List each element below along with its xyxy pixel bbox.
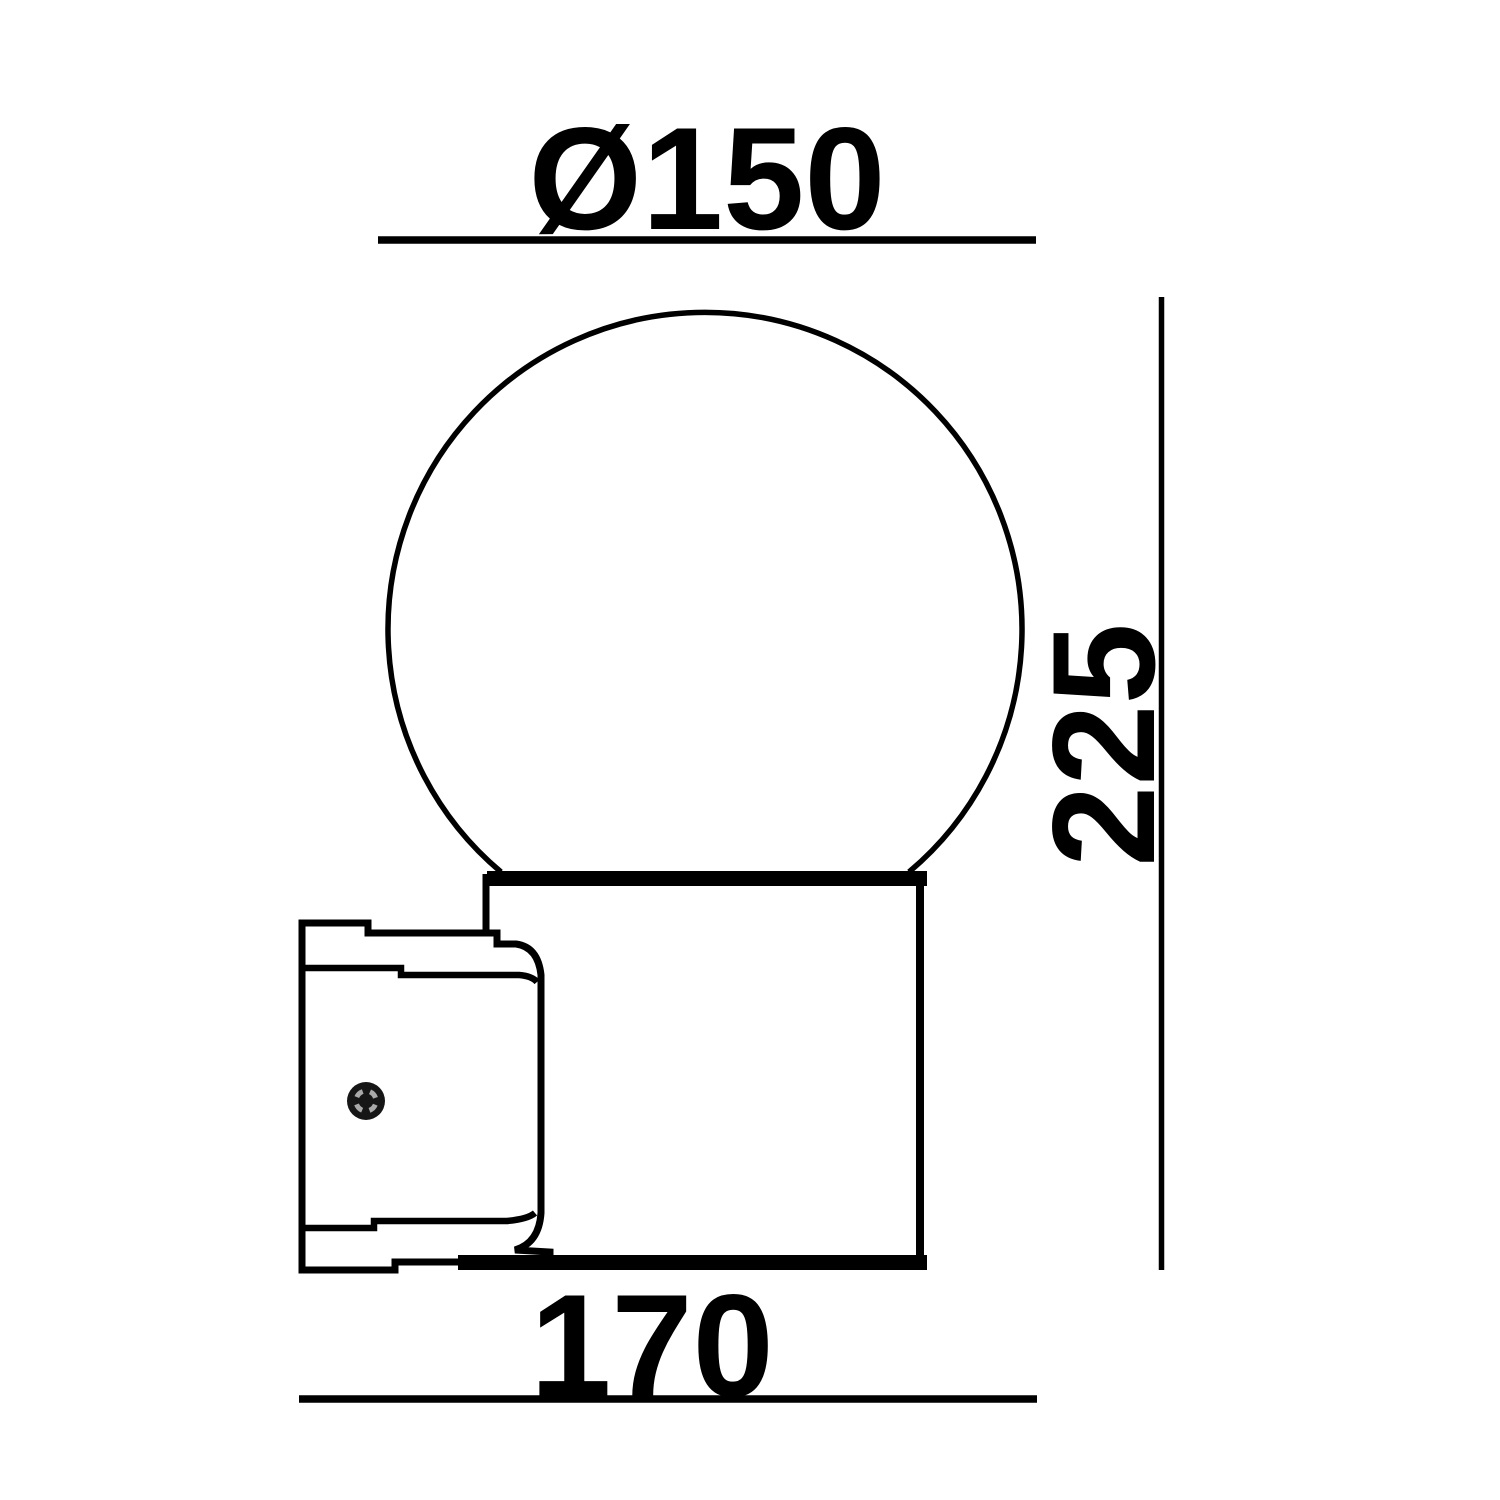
mounting-screw xyxy=(347,1082,385,1120)
dimension-diameter: Ø150 xyxy=(378,97,1036,260)
body-collar-band xyxy=(487,871,927,886)
dimension-height: 225 xyxy=(1022,297,1185,1270)
dimension-depth: 170 xyxy=(299,1264,1037,1427)
dimension-diameter-label: Ø150 xyxy=(528,97,885,260)
drawing-sheet: Ø150 225 170 xyxy=(0,0,1500,1500)
globe-outline xyxy=(388,312,1022,872)
technical-drawing: Ø150 225 170 xyxy=(0,0,1500,1500)
dimension-height-label: 225 xyxy=(1022,623,1185,867)
dimension-depth-label: 170 xyxy=(530,1264,774,1427)
screw-head xyxy=(347,1082,385,1120)
